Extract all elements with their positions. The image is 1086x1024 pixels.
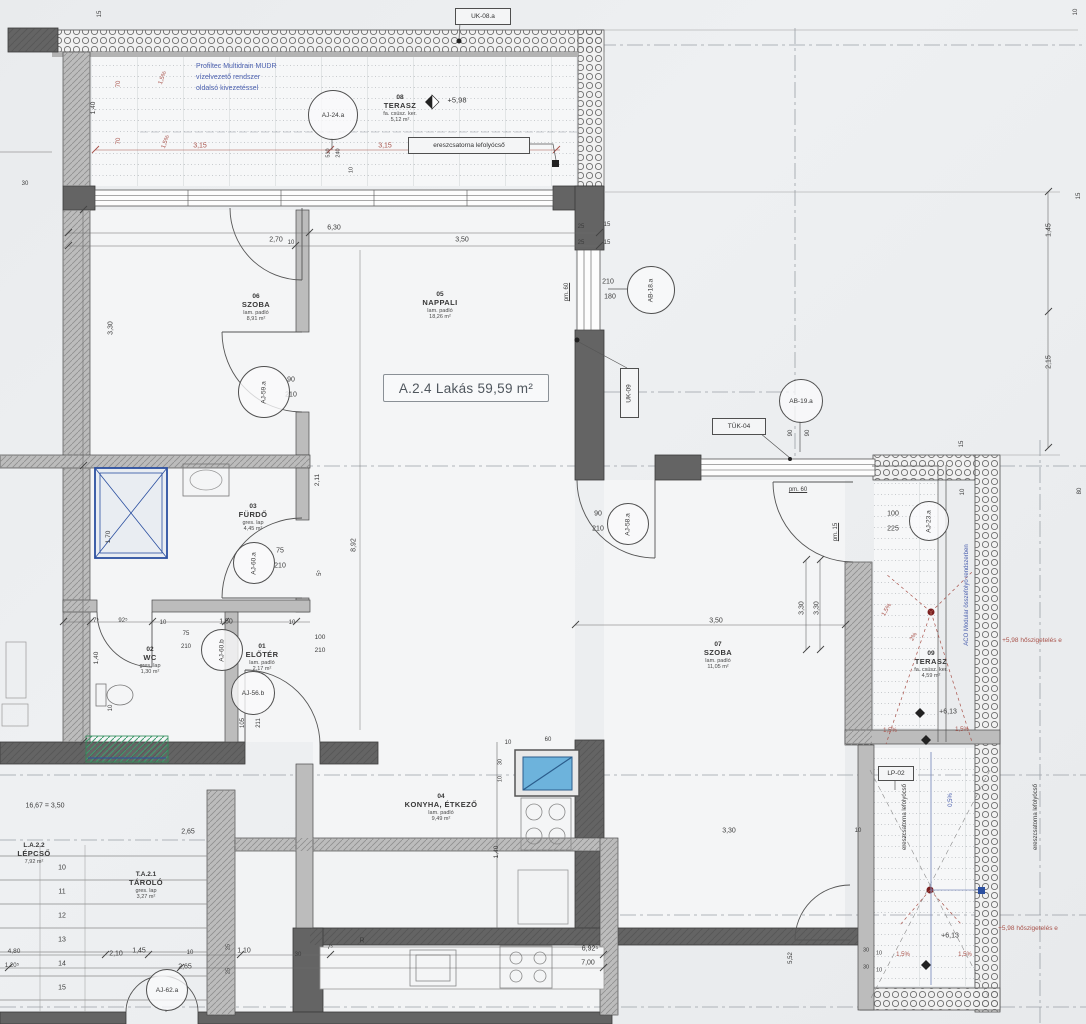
note-line: Profiltec Multidrain MUDR	[196, 62, 277, 73]
dim-label: 2,65	[181, 829, 195, 836]
dim-label: 0,5%	[948, 793, 954, 807]
dim-label: pm. 60	[789, 487, 807, 493]
dim-label: 1,70	[106, 531, 113, 544]
dim-label: 225	[887, 526, 899, 533]
dim-label: 1,5%	[955, 727, 969, 733]
dim-label: 2,70	[269, 237, 283, 244]
dim-label: 1,5%	[881, 603, 893, 618]
room-label: 08TERASZfa. csúsz. ker.5,12 m²	[383, 94, 417, 123]
room-label: 07SZOBAlam. padló11,05 m²	[704, 641, 732, 670]
tag-label: AJ-60.b	[219, 639, 226, 661]
drain-system-note: Profiltec Multidrain MUDRvízelvezető ren…	[196, 62, 277, 95]
dim-label: 1,45	[1046, 223, 1053, 237]
dim-label: 2,10	[109, 951, 123, 958]
dim-label: 75	[183, 631, 190, 637]
ref-label-box: LP-02	[878, 766, 914, 781]
stair-step-number: 10	[58, 865, 66, 872]
stair-step-number: 12	[58, 913, 66, 920]
dim-label: 1,40	[91, 102, 98, 115]
dim-label: 4,80	[8, 949, 21, 956]
stair-step-number: 13	[58, 937, 66, 944]
ref-label-box: UK-08.a	[455, 8, 511, 25]
dim-label: 25	[578, 224, 585, 230]
dim-label: 70	[116, 138, 122, 145]
dim-label: 180	[604, 294, 616, 301]
dim-label: 8,92	[351, 538, 358, 552]
room-label-line: TÁROLÓ	[129, 879, 163, 888]
dim-label: 30	[863, 965, 869, 971]
dim-label: 1,10	[237, 948, 251, 955]
room-label-line: LÉPCSŐ	[17, 850, 50, 859]
dim-label: 10	[187, 950, 194, 956]
stair-step-number: 14	[58, 961, 66, 968]
dim-label: 6,30	[327, 225, 341, 232]
room-label: 05NAPPALIlam. padló18,26 m²	[422, 291, 457, 320]
room-label-line: TERASZ	[383, 102, 417, 111]
dim-label: 1,45	[132, 948, 146, 955]
dim-label: 25	[226, 968, 232, 974]
ref-label: TÜK-04	[728, 423, 750, 430]
dim-label: 90	[594, 511, 602, 518]
room-label-line: 4,59 m²	[914, 673, 948, 679]
dim-label: 1,5%	[896, 952, 910, 958]
dim-label: 10	[288, 240, 295, 246]
room-label: T.A.2.1TÁROLÓgres. lap3,27 m²	[129, 871, 163, 900]
dim-label: 1,5%	[958, 952, 972, 958]
room-label: 06SZOBAlam. padló8,91 m²	[242, 293, 270, 322]
dim-label: 90	[788, 430, 794, 437]
room-label-line: 18,26 m²	[422, 314, 457, 320]
door-window-tag: AJ-58.a	[607, 503, 649, 545]
dim-label: 210	[602, 279, 614, 286]
dim-label: 211	[256, 718, 262, 728]
dim-label: 90	[805, 430, 811, 437]
dim-label: 10	[876, 968, 882, 974]
dim-label: pm. 60	[564, 283, 570, 301]
dim-label: 210	[274, 563, 286, 570]
dim-label: 15	[97, 11, 103, 18]
dim-label: 15	[604, 240, 611, 246]
dim-label: 7⁵	[93, 618, 99, 624]
stair-formula: 16,67 = 3,50	[25, 803, 64, 810]
dim-label: 1,40	[94, 652, 101, 665]
room-label-line: NAPPALI	[422, 299, 457, 308]
tag-label: AJ-58.a	[625, 513, 632, 535]
dim-label: 3,30	[722, 828, 736, 835]
door-window-tag: AJ-60.b	[201, 629, 243, 671]
dim-label: 15	[1076, 193, 1082, 200]
door-window-tag: AJ-56.b	[231, 671, 275, 715]
room-label-line: 3,27 m²	[129, 894, 163, 900]
door-window-tag: AB-19.a	[779, 379, 823, 423]
room-label-line: TERASZ	[914, 658, 948, 667]
tag-label: AJ-24.a	[322, 112, 344, 119]
tag-label: AJ-60.a	[251, 552, 258, 574]
room-label-line: 4,45 m²	[239, 526, 268, 532]
room-label-line: 7,92 m²	[17, 859, 50, 865]
dim-label: 80	[1077, 488, 1083, 495]
ref-label: UK-08.a	[471, 13, 495, 20]
dim-label: 3,50	[709, 618, 723, 625]
note-line: vízelvezető rendszer	[196, 73, 277, 84]
dim-label: 25	[226, 944, 232, 950]
dim-label: 105	[240, 718, 246, 728]
drain-note: ereszcsatorna lefolyócső	[902, 784, 908, 850]
dim-label: 1,20⁵	[5, 963, 19, 969]
door-window-tag: AJ-60.a	[233, 542, 275, 584]
dim-label: 75	[276, 548, 284, 555]
dim-label: 3,15	[378, 143, 392, 150]
room-label-line: FÜRDŐ	[239, 511, 268, 520]
dim-label: 2%	[909, 632, 919, 643]
dim-label: 25	[578, 240, 585, 246]
dim-label: 10	[505, 740, 512, 746]
dim-label: 10	[498, 776, 504, 782]
dim-label: 1,5%	[161, 135, 171, 150]
ref-label: ereszcsatorna lefolyócső	[433, 142, 505, 149]
room-label-line: KONYHA, ÉTKEZŐ	[405, 801, 478, 810]
room-label: 01ELŐTÉRlam. padló2,17 m²	[246, 643, 279, 672]
room-label: L.A.2.2LÉPCSŐ7,92 m²	[17, 842, 50, 865]
dim-label: 2,11	[315, 474, 322, 486]
dim-label: 3,50	[455, 237, 469, 244]
dim-label: 240	[336, 148, 342, 157]
dim-label: 70	[116, 81, 122, 88]
unit-area-label: A.2.4 Lakás 59,59 m²	[383, 374, 549, 402]
door-window-tag: AB-18.a	[627, 266, 675, 314]
dim-label: 10	[289, 620, 296, 626]
dim-label: 5,52	[788, 952, 794, 964]
dim-label: 100	[315, 635, 326, 642]
tag-label: AJ-56.b	[242, 690, 264, 697]
dim-label: 2,15	[1046, 355, 1053, 369]
dim-label: 3,30	[799, 601, 806, 615]
door-window-tag: AJ-23.a	[909, 501, 949, 541]
room-label-line: 5,12 m²	[383, 117, 417, 123]
dim-label: 210	[315, 648, 326, 655]
dim-label: 3,30	[814, 601, 821, 615]
dim-label: R	[359, 938, 364, 945]
insulation-note: +5,98 hőszigetelés e	[1002, 638, 1062, 645]
room-label-line: 2,17 m²	[246, 666, 279, 672]
elevation-label: +6,13	[941, 933, 959, 940]
annotation-text-layer: 1510151,452,15801,4070701,5%1,5%3,153,15…	[0, 0, 1086, 1024]
dim-label: 15	[959, 441, 965, 448]
room-label: 03FÜRDŐgres. lap4,45 m²	[239, 503, 268, 532]
dim-label: 10	[349, 167, 355, 173]
dim-label: 10	[1073, 9, 1079, 16]
floor-plan-page: 1510151,452,15801,4070701,5%1,5%3,153,15…	[0, 0, 1086, 1024]
elevation-label: +5,98	[448, 96, 467, 104]
dim-label: 2,65	[178, 964, 192, 971]
room-label-line: 11,05 m²	[704, 664, 732, 670]
dim-label: 30	[863, 948, 869, 954]
dim-label: 210	[181, 644, 191, 650]
door-window-tag: AJ-62.a	[146, 969, 188, 1011]
room-label-line: 9,49 m²	[405, 816, 478, 822]
dim-label: 1,50	[219, 619, 233, 626]
tag-label: AJ-59.a	[261, 381, 268, 403]
door-window-tag: AJ-59.a	[238, 366, 290, 418]
room-label: 09TERASZfa. csúsz. ker.4,59 m²	[914, 650, 948, 679]
stair-step-number: 11	[58, 889, 65, 896]
room-label-line: ELŐTÉR	[246, 651, 279, 660]
dim-label: 510	[326, 148, 332, 157]
dim-label: 3,30	[108, 321, 115, 335]
dim-label: 7,00	[581, 960, 595, 967]
room-label-line: 8,91 m²	[242, 316, 270, 322]
dim-label: 5⁵	[317, 570, 323, 576]
dim-label: 10	[855, 828, 862, 834]
ref-label-box: UK-09	[620, 368, 639, 418]
dim-label: 92⁵	[118, 618, 127, 624]
dim-label: 15	[604, 222, 611, 228]
room-label: 02WCgres. lap1,30 m²	[139, 646, 160, 675]
tag-label: AB-18.a	[648, 278, 655, 302]
dim-label: 10	[108, 705, 114, 712]
dim-label: 6,92⁵	[582, 946, 599, 953]
dim-label: 1,5%	[883, 728, 897, 734]
dim-label: 100	[887, 511, 899, 518]
dim-label: 1,40	[494, 846, 501, 859]
tag-label: AB-19.a	[789, 398, 813, 405]
room-label: 04KONYHA, ÉTKEZŐlam. padló9,49 m²	[405, 793, 478, 822]
dim-label: 30	[498, 759, 504, 765]
drain-note: ereszcsatorna lefolyócső	[1033, 784, 1039, 850]
room-label-line: SZOBA	[704, 649, 732, 658]
dim-label: pm. 15	[833, 523, 839, 541]
room-label-line: SZOBA	[242, 301, 270, 310]
dim-label: 210	[592, 526, 604, 533]
ref-label: UK-09	[626, 384, 633, 402]
dim-label: 10	[876, 951, 882, 957]
tag-label: AJ-23.a	[926, 510, 933, 532]
dim-label: 7⁵	[327, 945, 333, 951]
dim-label: 10	[960, 489, 966, 496]
ref-label-box: ereszcsatorna lefolyócső	[408, 137, 530, 154]
dim-label: 1,5%	[158, 71, 168, 86]
elevation-label: +6,13	[939, 709, 957, 716]
tag-label: AJ-62.a	[156, 987, 178, 994]
aco-note: ACO Modular összefolyó rendszerben	[964, 544, 970, 645]
ref-label-box: TÜK-04	[712, 418, 766, 435]
dim-label: 30	[22, 181, 29, 187]
ref-label: LP-02	[887, 770, 904, 777]
dim-label: 10	[160, 620, 167, 626]
door-window-tag: AJ-24.a	[308, 90, 358, 140]
stair-step-number: 15	[58, 985, 66, 992]
room-label-line: 1,30 m²	[139, 669, 160, 675]
insulation-note: +5,98 hőszigetelés e	[998, 926, 1058, 933]
dim-label: 30	[295, 952, 302, 958]
dim-label: 60	[545, 737, 552, 743]
dim-label: 3,15	[193, 143, 207, 150]
room-label-line: WC	[139, 654, 160, 663]
note-line: oldalsó kivezetéssel	[196, 84, 277, 95]
